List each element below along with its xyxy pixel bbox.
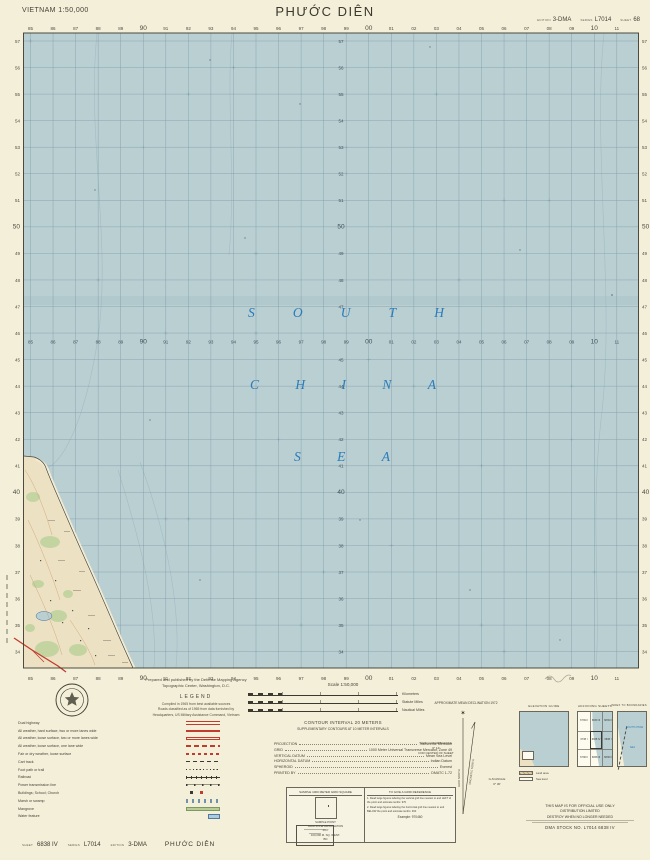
- gm-angle-value: 0° 30′: [493, 782, 501, 786]
- grid-label: 50: [13, 224, 21, 231]
- grid-label: 38: [15, 543, 21, 548]
- grid-label: 85: [28, 340, 34, 345]
- series-label: SERIES: [580, 18, 592, 22]
- grid-label: 51: [642, 198, 648, 203]
- grid-label: 05: [479, 676, 485, 681]
- security-line-1: THIS MAP IS FOR OFFICIAL USE ONLY: [520, 804, 640, 808]
- supplementary-contours: SUPPLEMENTARY CONTOURS AT 10 METER INTER…: [252, 727, 434, 731]
- grid-label: 87: [73, 26, 79, 31]
- grid-label: 56: [338, 65, 344, 70]
- sea-name-letter: H: [295, 377, 305, 393]
- grid-label: 94: [231, 26, 237, 31]
- grid-label: 91: [163, 26, 169, 31]
- sea-name-letter: S: [248, 305, 255, 321]
- sea-name-letter: H: [434, 305, 444, 321]
- grid-label: 52: [15, 172, 21, 177]
- grid-label: 95: [253, 340, 259, 345]
- dotted-leader: [285, 750, 367, 751]
- legend-item-label: Fair or dry weather, loose surface: [18, 752, 71, 756]
- grid-label: 35: [642, 623, 648, 628]
- grid-label: 00: [365, 339, 373, 346]
- grid-label: 90: [140, 25, 148, 32]
- legend-item-label: Marsh or swamp: [18, 799, 45, 803]
- projection-row-label: VERTICAL DATUM: [274, 754, 305, 758]
- margin-note-mark: [304, 829, 326, 830]
- legend-item-label: Water feature: [18, 814, 40, 818]
- legend-item: Fair or dry weather, loose surface: [18, 750, 220, 758]
- grid-label: 86: [51, 676, 57, 681]
- grid-label: 04: [456, 26, 462, 31]
- grid-label: 06: [502, 340, 508, 345]
- elevation-legend-row: Sea level: [519, 776, 571, 782]
- legend-symbol-dual: [186, 721, 220, 725]
- legend-item-label: All weather, hard surface, two or more l…: [18, 729, 97, 733]
- legend-symbol-swamp: [186, 799, 220, 803]
- scale-bar: Kilometers: [248, 690, 438, 698]
- grid-label: 03: [434, 676, 440, 681]
- adjoining-sheet-number: 6738 II: [578, 756, 590, 759]
- bottom-sheet-label: SHEET: [22, 843, 33, 847]
- sea-name-letter: I: [341, 377, 346, 393]
- grid-label: 99: [344, 26, 350, 31]
- boundaries-sea-label-1: SOUTH CHINA: [626, 726, 648, 729]
- grid-label: 53: [15, 145, 21, 150]
- map-sheet: 8585858686868787878888888989899090909191…: [0, 0, 650, 860]
- grid-label: 08: [547, 26, 553, 31]
- grid-label: 04: [456, 340, 462, 345]
- adjoining-sheet-number: 6838 II: [602, 756, 613, 759]
- projection-row-label: PRINTED BY: [274, 771, 296, 775]
- grid-label: 51: [15, 198, 21, 203]
- grid-label: 10: [591, 25, 599, 32]
- adjoining-sheet-number: 6838 IV: [590, 738, 602, 741]
- sea-name-letter: E: [337, 449, 345, 465]
- legend-item: All weather, hard surface, two or more l…: [18, 727, 220, 735]
- adjoining-sheets-box: 6739 II6839 III6839 II6738 I6838 IV6838 …: [577, 711, 613, 767]
- grid-label: 04: [456, 676, 462, 681]
- country-scale: VIETNAM 1:50,000: [22, 7, 89, 14]
- grid-label: 96: [276, 26, 282, 31]
- grid-label: 39: [15, 517, 21, 522]
- legend-symbol-trail: [186, 769, 220, 770]
- grid-label: 92: [186, 26, 192, 31]
- projection-row-label: GRID: [274, 748, 283, 752]
- boundaries-land-wedge: [618, 712, 646, 766]
- grid-label: 93: [208, 26, 214, 31]
- elevation-swatch: [519, 777, 533, 781]
- grid-label: 34: [338, 649, 344, 654]
- grid-convergence-value: 0° 14′: [432, 746, 440, 750]
- grid-label: 06: [502, 26, 508, 31]
- grid-convergence-label: GRID CONVERGENCE: [420, 741, 452, 745]
- legend-symbol-bldg: [186, 791, 220, 794]
- grid-label: 52: [338, 172, 344, 177]
- grid-label: 56: [15, 65, 21, 70]
- elevation-guide-legend: Land area Sea level: [519, 770, 571, 782]
- scale-bar-rule: [248, 692, 398, 696]
- stock-number: DMA STOCK NO. L7014 6838 IV: [520, 825, 640, 830]
- grid-label: 36: [15, 596, 21, 601]
- legend-item-label: Buildings; School; Church: [18, 791, 59, 795]
- grid-label: 53: [338, 145, 344, 150]
- grid-label: 41: [15, 464, 21, 469]
- adjoining-grid-line: [578, 749, 612, 750]
- sheet-label: SHEET: [620, 18, 631, 22]
- grid-label: 43: [338, 411, 344, 416]
- legend-item-label: Power transmission line: [18, 783, 56, 787]
- grid-label: 57: [15, 39, 21, 44]
- grid-label: 98: [321, 676, 327, 681]
- left-margin-vertical-note: [6, 575, 8, 645]
- grid-label: 09: [569, 26, 575, 31]
- grid-label: 86: [51, 340, 57, 345]
- grid-label: 40: [337, 489, 345, 496]
- scale-bar: Nautical Miles: [248, 706, 438, 714]
- legend-item: All weather, loose surface, one lane wid…: [18, 742, 220, 750]
- grid-label: 10: [591, 339, 599, 346]
- grid-label: 07: [524, 26, 530, 31]
- scale-bar-rule: [248, 708, 398, 712]
- grid-label: 35: [338, 623, 344, 628]
- legend-item-label: All weather, loose surface, one lane wid…: [18, 744, 83, 748]
- legend-item: Foot path or trail: [18, 766, 220, 774]
- grid-label: 87: [73, 676, 79, 681]
- grid-label: 02: [411, 676, 417, 681]
- grid-label: 98: [321, 26, 327, 31]
- grid-label: 09: [569, 340, 575, 345]
- legend-item: All weather, loose surface, two or more …: [18, 735, 220, 743]
- margin-note-box: [296, 825, 334, 846]
- adjoining-sheet-number: 6739 II: [578, 719, 590, 722]
- security-line-3: DESTROY WHEN NO LONGER NEEDED: [520, 815, 640, 819]
- sample-grid-square: [315, 797, 337, 819]
- sea-name-letter: C: [250, 377, 259, 393]
- sea-name-letter: S: [294, 449, 301, 465]
- legend-symbol-hard: [186, 730, 220, 732]
- grid-label: 45: [642, 357, 648, 362]
- grid-label: 40: [642, 489, 650, 496]
- legend-symbol-cart: [186, 761, 220, 762]
- grid-label: 45: [338, 357, 344, 362]
- grid-label: 43: [642, 411, 648, 416]
- grid-label: 49: [642, 251, 648, 256]
- grid-label: 07: [524, 676, 530, 681]
- sea-name-letter: T: [389, 305, 397, 321]
- grid-label: 57: [338, 39, 344, 44]
- legend-item: Marsh or swamp: [18, 797, 220, 805]
- edition-label: EDITION: [537, 18, 551, 22]
- bottom-series-label: SERIES: [68, 843, 80, 847]
- bottom-edition-label: EDITION: [111, 843, 125, 847]
- true-north-star-icon: ✶: [460, 709, 466, 717]
- grid-label: 10: [591, 675, 599, 682]
- adjoining-sheet-number: 6839 II: [602, 719, 613, 722]
- grid-label: 56: [642, 65, 648, 70]
- adjoining-sheet-number: 6839 III: [590, 719, 602, 722]
- adjoining-sheet-number: 6838 I: [602, 738, 613, 741]
- dotted-leader: [312, 761, 428, 762]
- grid-label: 08: [547, 340, 553, 345]
- grid-label: 92: [186, 340, 192, 345]
- margin-note-mark: [309, 833, 321, 834]
- legend-item-label: All weather, loose surface, two or more …: [18, 736, 98, 740]
- grid-label: 40: [13, 489, 21, 496]
- grid-label: 43: [15, 411, 21, 416]
- grid-label: 38: [338, 543, 344, 548]
- sea-name-letter: N: [382, 377, 391, 393]
- legend-item: Mangrove: [18, 805, 220, 813]
- legend-item-label: Railroad: [18, 775, 31, 779]
- grid-label: 09: [569, 676, 575, 681]
- legend-list: Dual highway All weather, hard surface, …: [18, 719, 220, 820]
- grid-label: 50: [337, 224, 345, 231]
- grid-label: 11: [614, 26, 619, 31]
- grid-label: 99: [344, 676, 350, 681]
- grid-label: 48: [642, 278, 648, 283]
- sea-name-letter: O: [293, 305, 303, 321]
- grid-label: 01: [389, 676, 395, 681]
- grid-label: 50: [642, 224, 650, 231]
- security-note: THIS MAP IS FOR OFFICIAL USE ONLY DISTRI…: [520, 804, 640, 830]
- projection-row-label: HORIZONTAL DATUM: [274, 759, 310, 763]
- grid-label: 95: [253, 26, 259, 31]
- grid-label: 03: [434, 340, 440, 345]
- legend-symbol-fair: [186, 753, 220, 754]
- legend-item: Dual highway: [18, 719, 220, 727]
- elevation-guide-header: ELEVATION GUIDE: [513, 704, 575, 708]
- grid-label: 90: [140, 339, 148, 346]
- gm-angle-label: G-M ANGLE: [489, 777, 506, 781]
- legend-item: Water feature: [18, 813, 220, 821]
- grid-label: 89: [118, 26, 124, 31]
- grid-label: 93: [208, 340, 214, 345]
- legend-symbol-rail: [186, 776, 220, 779]
- grid-label: 89: [118, 340, 124, 345]
- declination-diagram: APPROXIMATE MEAN DECLINATION 1972 ✶ GRID…: [413, 698, 519, 822]
- grid-label: 00: [365, 25, 373, 32]
- security-line-2: DISTRIBUTION LIMITED: [520, 809, 640, 813]
- contour-interval: CONTOUR INTERVAL 20 METERS: [252, 720, 434, 725]
- grid-label: 96: [276, 676, 282, 681]
- grid-label: 11: [614, 340, 619, 345]
- grid-label: 37: [15, 570, 21, 575]
- grid-label: 54: [642, 118, 648, 123]
- bottom-sheet-title: PHƯỚC DIÊN: [165, 841, 215, 848]
- scale-bar-unit: Kilometers: [402, 692, 419, 696]
- grid-label: 87: [73, 340, 79, 345]
- elevation-swatch: [519, 771, 533, 775]
- grid-label: 97: [299, 340, 305, 345]
- grid-label: 06: [502, 676, 508, 681]
- legend-item: Cart track: [18, 758, 220, 766]
- grid-label: 02: [411, 340, 417, 345]
- grid-label: 86: [51, 26, 57, 31]
- edition-value: 3-DMA: [553, 17, 572, 23]
- grid-label: 51: [338, 198, 344, 203]
- grid-label: 42: [338, 437, 344, 442]
- gridref-left-header: SAMPLE 1000 METER GRID SQUARE: [289, 790, 362, 796]
- grid-label: 47: [642, 304, 648, 309]
- grid-label: 53: [642, 145, 648, 150]
- grid-label: 41: [642, 464, 648, 469]
- legend-item: Buildings; School; Church: [18, 789, 220, 797]
- grid-label: 99: [344, 340, 350, 345]
- grid-label: 57: [642, 39, 648, 44]
- bottom-sheet-info: SHEET6838 IV SERIESL7014 EDITION3-DMA PH…: [22, 841, 215, 848]
- grid-north-label: GRID NORTH: [457, 769, 461, 787]
- grid-label: 47: [15, 304, 21, 309]
- grid-label: 34: [15, 649, 21, 654]
- sheet-value: 68: [633, 17, 640, 23]
- grid-label: 34: [642, 649, 648, 654]
- grid-label: 48: [15, 278, 21, 283]
- legend-item-label: Foot path or trail: [18, 768, 44, 772]
- grid-label: 00: [365, 675, 373, 682]
- grid-label: 37: [338, 570, 344, 575]
- grid-label: 07: [524, 340, 530, 345]
- bottom-sheet-value: 6838 IV: [37, 842, 58, 848]
- grid-label: 36: [338, 596, 344, 601]
- grid-label: 45: [15, 357, 21, 362]
- sea-tonal-band: [24, 296, 639, 305]
- elevation-guide-box: [519, 711, 569, 767]
- legend-item-label: Dual highway: [18, 721, 40, 725]
- grid-label: 55: [15, 92, 21, 97]
- agency-seal: [56, 684, 88, 716]
- legend-item: Power transmission line: [18, 781, 220, 789]
- grid-label: 85: [28, 676, 34, 681]
- adjoining-sheet-number: 6838 III: [590, 756, 602, 759]
- boundaries-sea-label-2: SEA: [630, 746, 650, 749]
- grid-label: 88: [96, 676, 102, 681]
- projection-row-label: PROJECTION: [274, 742, 297, 746]
- grid-label: 55: [642, 92, 648, 97]
- grid-label: 97: [299, 676, 305, 681]
- adjoining-sheet-number: 6738 I: [578, 738, 590, 741]
- dotted-leader: [299, 744, 417, 745]
- declination-caption: APPROXIMATE MEAN DECLINATION 1972: [435, 701, 498, 705]
- grid-label: 48: [338, 278, 344, 283]
- legend-symbol-loose2: [186, 737, 220, 739]
- projection-row-label: SPHEROID: [274, 765, 293, 769]
- legend-symbol-power: [186, 784, 220, 786]
- grid-label: 42: [15, 437, 21, 442]
- grid-label: 37: [642, 570, 648, 575]
- grid-label: 02: [411, 26, 417, 31]
- sea-area: [24, 33, 639, 668]
- grid-label: 52: [642, 172, 648, 177]
- grid-label: 54: [338, 118, 344, 123]
- scale-bar: Statute Miles: [248, 698, 438, 706]
- sea-name-letter: A: [428, 377, 436, 393]
- grid-label: 55: [338, 92, 344, 97]
- grid-label: 01: [389, 340, 395, 345]
- grid-label: 35: [15, 623, 21, 628]
- sea-name-line-china: CHINA: [250, 377, 436, 393]
- elevation-swatch-label: Sea level: [536, 777, 548, 781]
- series-value: L7014: [595, 17, 612, 23]
- grid-label: 39: [338, 517, 344, 522]
- legend-symbol-mangrove: [186, 807, 220, 811]
- header-sheet-info: EDITION3-DMA SERIESL7014 SHEET68: [537, 8, 640, 26]
- grid-label: 49: [338, 251, 344, 256]
- elevation-guide-inset: [522, 751, 534, 760]
- grid-label: 94: [231, 340, 237, 345]
- fine-print-mark: [526, 820, 634, 821]
- legend-item-label: Mangrove: [18, 807, 34, 811]
- grid-label: 46: [15, 331, 21, 336]
- bottom-series-value: L7014: [84, 842, 101, 848]
- dotted-leader: [307, 756, 424, 757]
- seal-star-icon: [65, 692, 79, 706]
- grid-label: 88: [96, 26, 102, 31]
- grid-label: 44: [15, 384, 21, 389]
- magnetic-north-label: MAGNETIC NORTH: [468, 759, 476, 785]
- scale-block: Scale 1:50,000 Kilometers Statute Miles …: [248, 682, 438, 714]
- index-boundaries-header: INDEX TO BOUNDARIES: [610, 704, 648, 707]
- scale-bar-rule: [248, 700, 398, 704]
- grid-label: 01: [389, 26, 395, 31]
- scale-bars: Kilometers Statute Miles Nautical Miles: [248, 690, 438, 714]
- grid-label: 39: [642, 517, 648, 522]
- grid-label: 91: [163, 340, 169, 345]
- grid-label: 54: [15, 118, 21, 123]
- legend-symbol-water: [208, 814, 220, 819]
- dotted-leader: [298, 773, 430, 774]
- grid-label: 05: [479, 26, 485, 31]
- legend-item-label: Cart track: [18, 760, 34, 764]
- grid-label: 49: [15, 251, 21, 256]
- fine-print-mark: [532, 822, 628, 823]
- contour-note: CONTOUR INTERVAL 20 METERS SUPPLEMENTARY…: [252, 720, 434, 731]
- sea-name-line-south: SOUTH: [248, 305, 444, 321]
- grid-label: 11: [614, 676, 619, 681]
- grid-convergence-note: FOR CENTER OF SHEET: [418, 751, 454, 755]
- grid-label: 46: [642, 331, 648, 336]
- legend-item: Railroad: [18, 774, 220, 782]
- grid-label: 96: [276, 340, 282, 345]
- sea-name-letter: A: [382, 449, 390, 465]
- grid-label: 97: [299, 26, 305, 31]
- bottom-edition-value: 3-DMA: [128, 842, 147, 848]
- elevation-swatch-label: Land area: [536, 771, 549, 775]
- legend-symbol-loose1: [186, 745, 220, 747]
- sea-name-letter: U: [341, 305, 351, 321]
- grid-label: 05: [479, 340, 485, 345]
- sea-name-line-sea: SEA: [294, 449, 390, 465]
- grid-label: 36: [642, 596, 648, 601]
- grid-label: 98: [321, 340, 327, 345]
- grid-label: 88: [96, 340, 102, 345]
- grid-label: 44: [642, 384, 648, 389]
- grid-label: 38: [642, 543, 648, 548]
- grid-label: 03: [434, 26, 440, 31]
- scale-title: Scale 1:50,000: [248, 682, 438, 687]
- index-boundaries-box: SOUTH CHINA SEA: [617, 711, 647, 767]
- grid-label: 85: [28, 26, 34, 31]
- grid-label: 42: [642, 437, 648, 442]
